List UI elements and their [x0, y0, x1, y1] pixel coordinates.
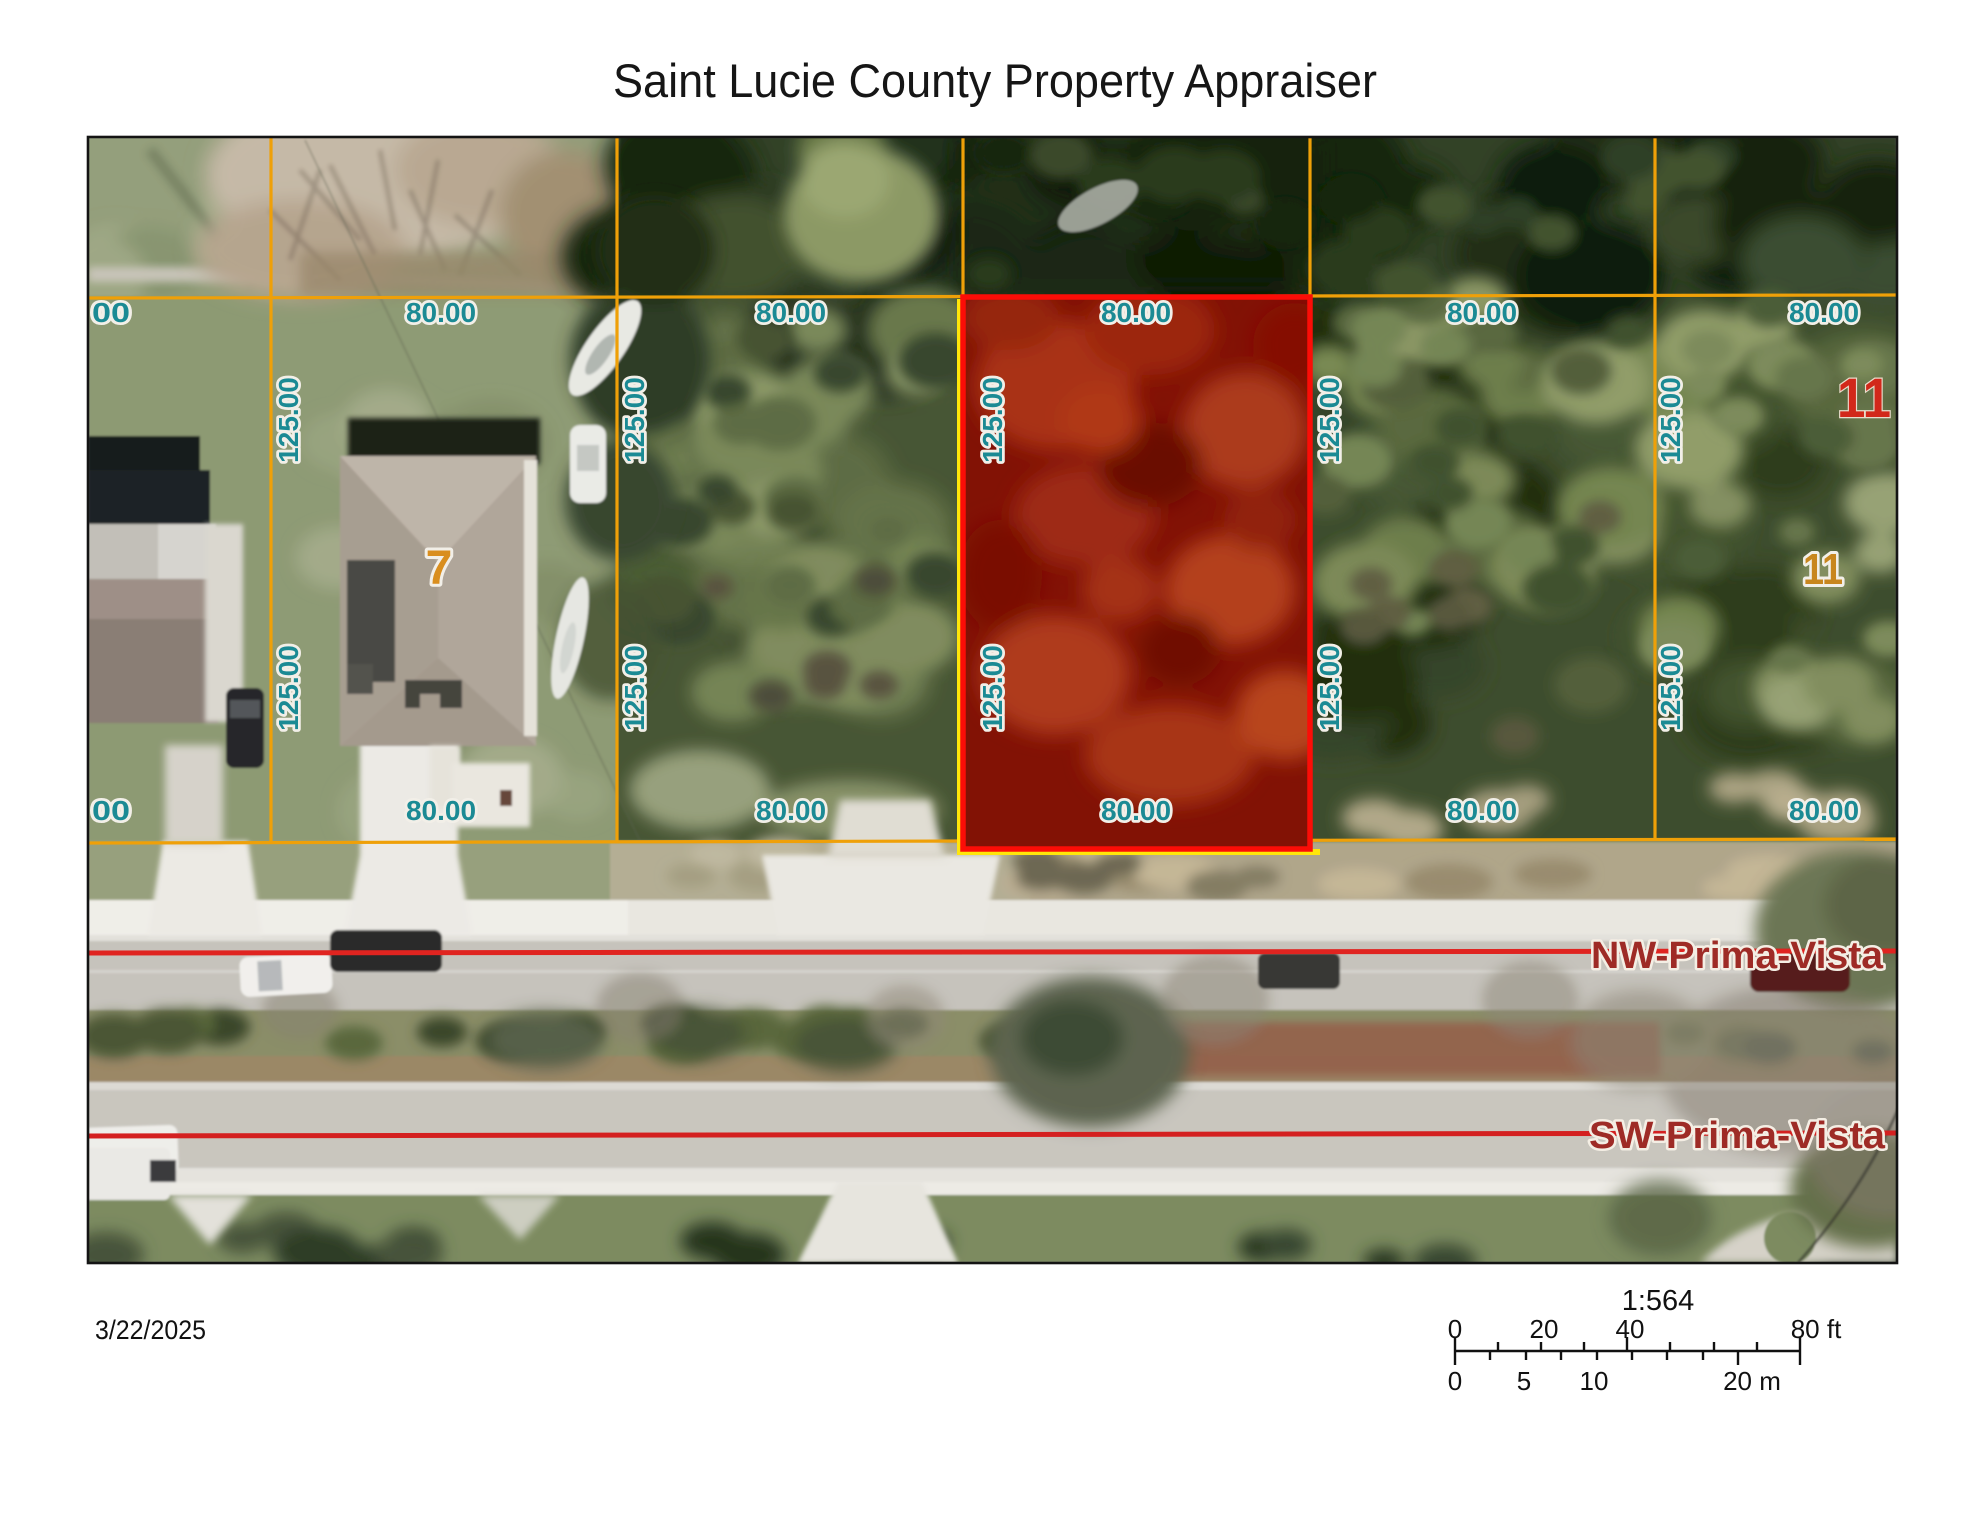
svg-text:125.00: 125.00 [619, 377, 650, 463]
svg-text:Saint Lucie County Property Ap: Saint Lucie County Property Appraiser [613, 54, 1377, 107]
svg-text:80.00: 80.00 [1447, 297, 1517, 328]
svg-text:80.00: 80.00 [1101, 795, 1171, 826]
svg-text:00: 00 [92, 795, 130, 826]
svg-text:11: 11 [1803, 545, 1843, 594]
svg-text:5: 5 [1517, 1366, 1531, 1396]
svg-text:80.00: 80.00 [756, 297, 826, 328]
svg-text:80.00: 80.00 [1447, 795, 1517, 826]
svg-text:80.00: 80.00 [406, 795, 476, 826]
svg-text:125.00: 125.00 [273, 645, 304, 731]
svg-text:7: 7 [426, 542, 453, 595]
svg-text:00: 00 [92, 297, 130, 328]
svg-text:40: 40 [1616, 1314, 1645, 1344]
svg-text:125.00: 125.00 [1314, 377, 1345, 463]
svg-text:125.00: 125.00 [977, 645, 1008, 731]
svg-text:125.00: 125.00 [1314, 645, 1345, 731]
svg-text:3/22/2025: 3/22/2025 [95, 1315, 206, 1345]
svg-text:SW-Prima-Vista: SW-Prima-Vista [1589, 1115, 1886, 1157]
svg-text:80.00: 80.00 [1789, 297, 1859, 328]
svg-text:80.00: 80.00 [1789, 795, 1859, 826]
svg-text:NW-Prima-Vista: NW-Prima-Vista [1591, 935, 1884, 977]
svg-text:125.00: 125.00 [1655, 377, 1686, 463]
svg-text:1:564: 1:564 [1622, 1285, 1695, 1317]
svg-text:11: 11 [1837, 366, 1891, 429]
svg-text:125.00: 125.00 [273, 377, 304, 463]
svg-text:125.00: 125.00 [619, 645, 650, 731]
svg-text:80 ft: 80 ft [1791, 1314, 1842, 1344]
svg-text:10: 10 [1580, 1366, 1609, 1396]
svg-text:20: 20 [1530, 1314, 1559, 1344]
svg-text:80.00: 80.00 [406, 297, 476, 328]
svg-text:20 m: 20 m [1723, 1366, 1781, 1396]
svg-text:80.00: 80.00 [756, 795, 826, 826]
svg-text:80.00: 80.00 [1101, 297, 1171, 328]
svg-text:125.00: 125.00 [1655, 645, 1686, 731]
svg-text:0: 0 [1448, 1366, 1462, 1396]
svg-text:125.00: 125.00 [977, 377, 1008, 463]
